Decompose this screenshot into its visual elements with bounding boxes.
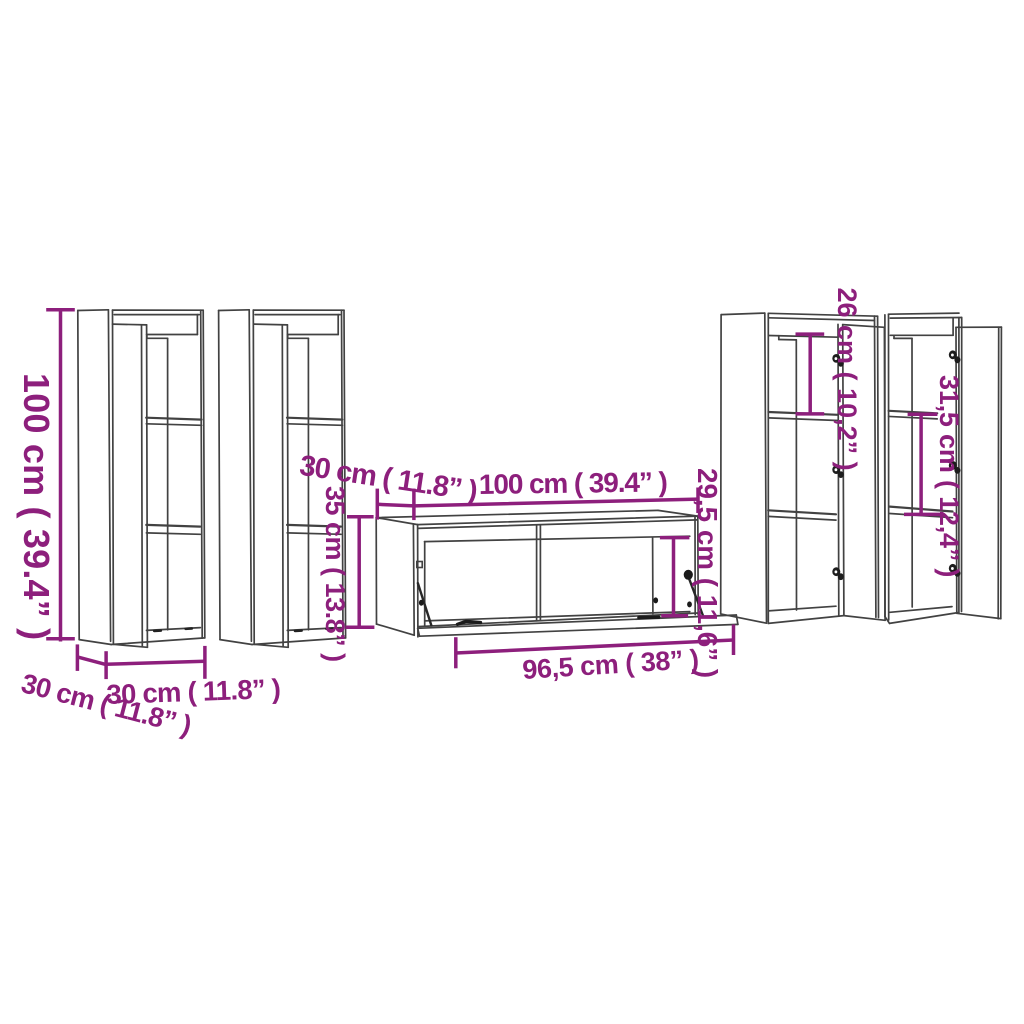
svg-text:26 cm ( 10,2” ): 26 cm ( 10,2” ) (832, 288, 862, 471)
svg-text:30 cm ( 11.8” ): 30 cm ( 11.8” ) (106, 673, 281, 710)
svg-text:31,5 cm ( 12,4” ): 31,5 cm ( 12,4” ) (934, 375, 964, 577)
svg-text:100 cm ( 39.4” ): 100 cm ( 39.4” ) (16, 373, 57, 640)
svg-text:35 cm ( 13.8” ): 35 cm ( 13.8” ) (320, 486, 350, 662)
svg-text:100 cm ( 39.4” ): 100 cm ( 39.4” ) (479, 466, 667, 500)
